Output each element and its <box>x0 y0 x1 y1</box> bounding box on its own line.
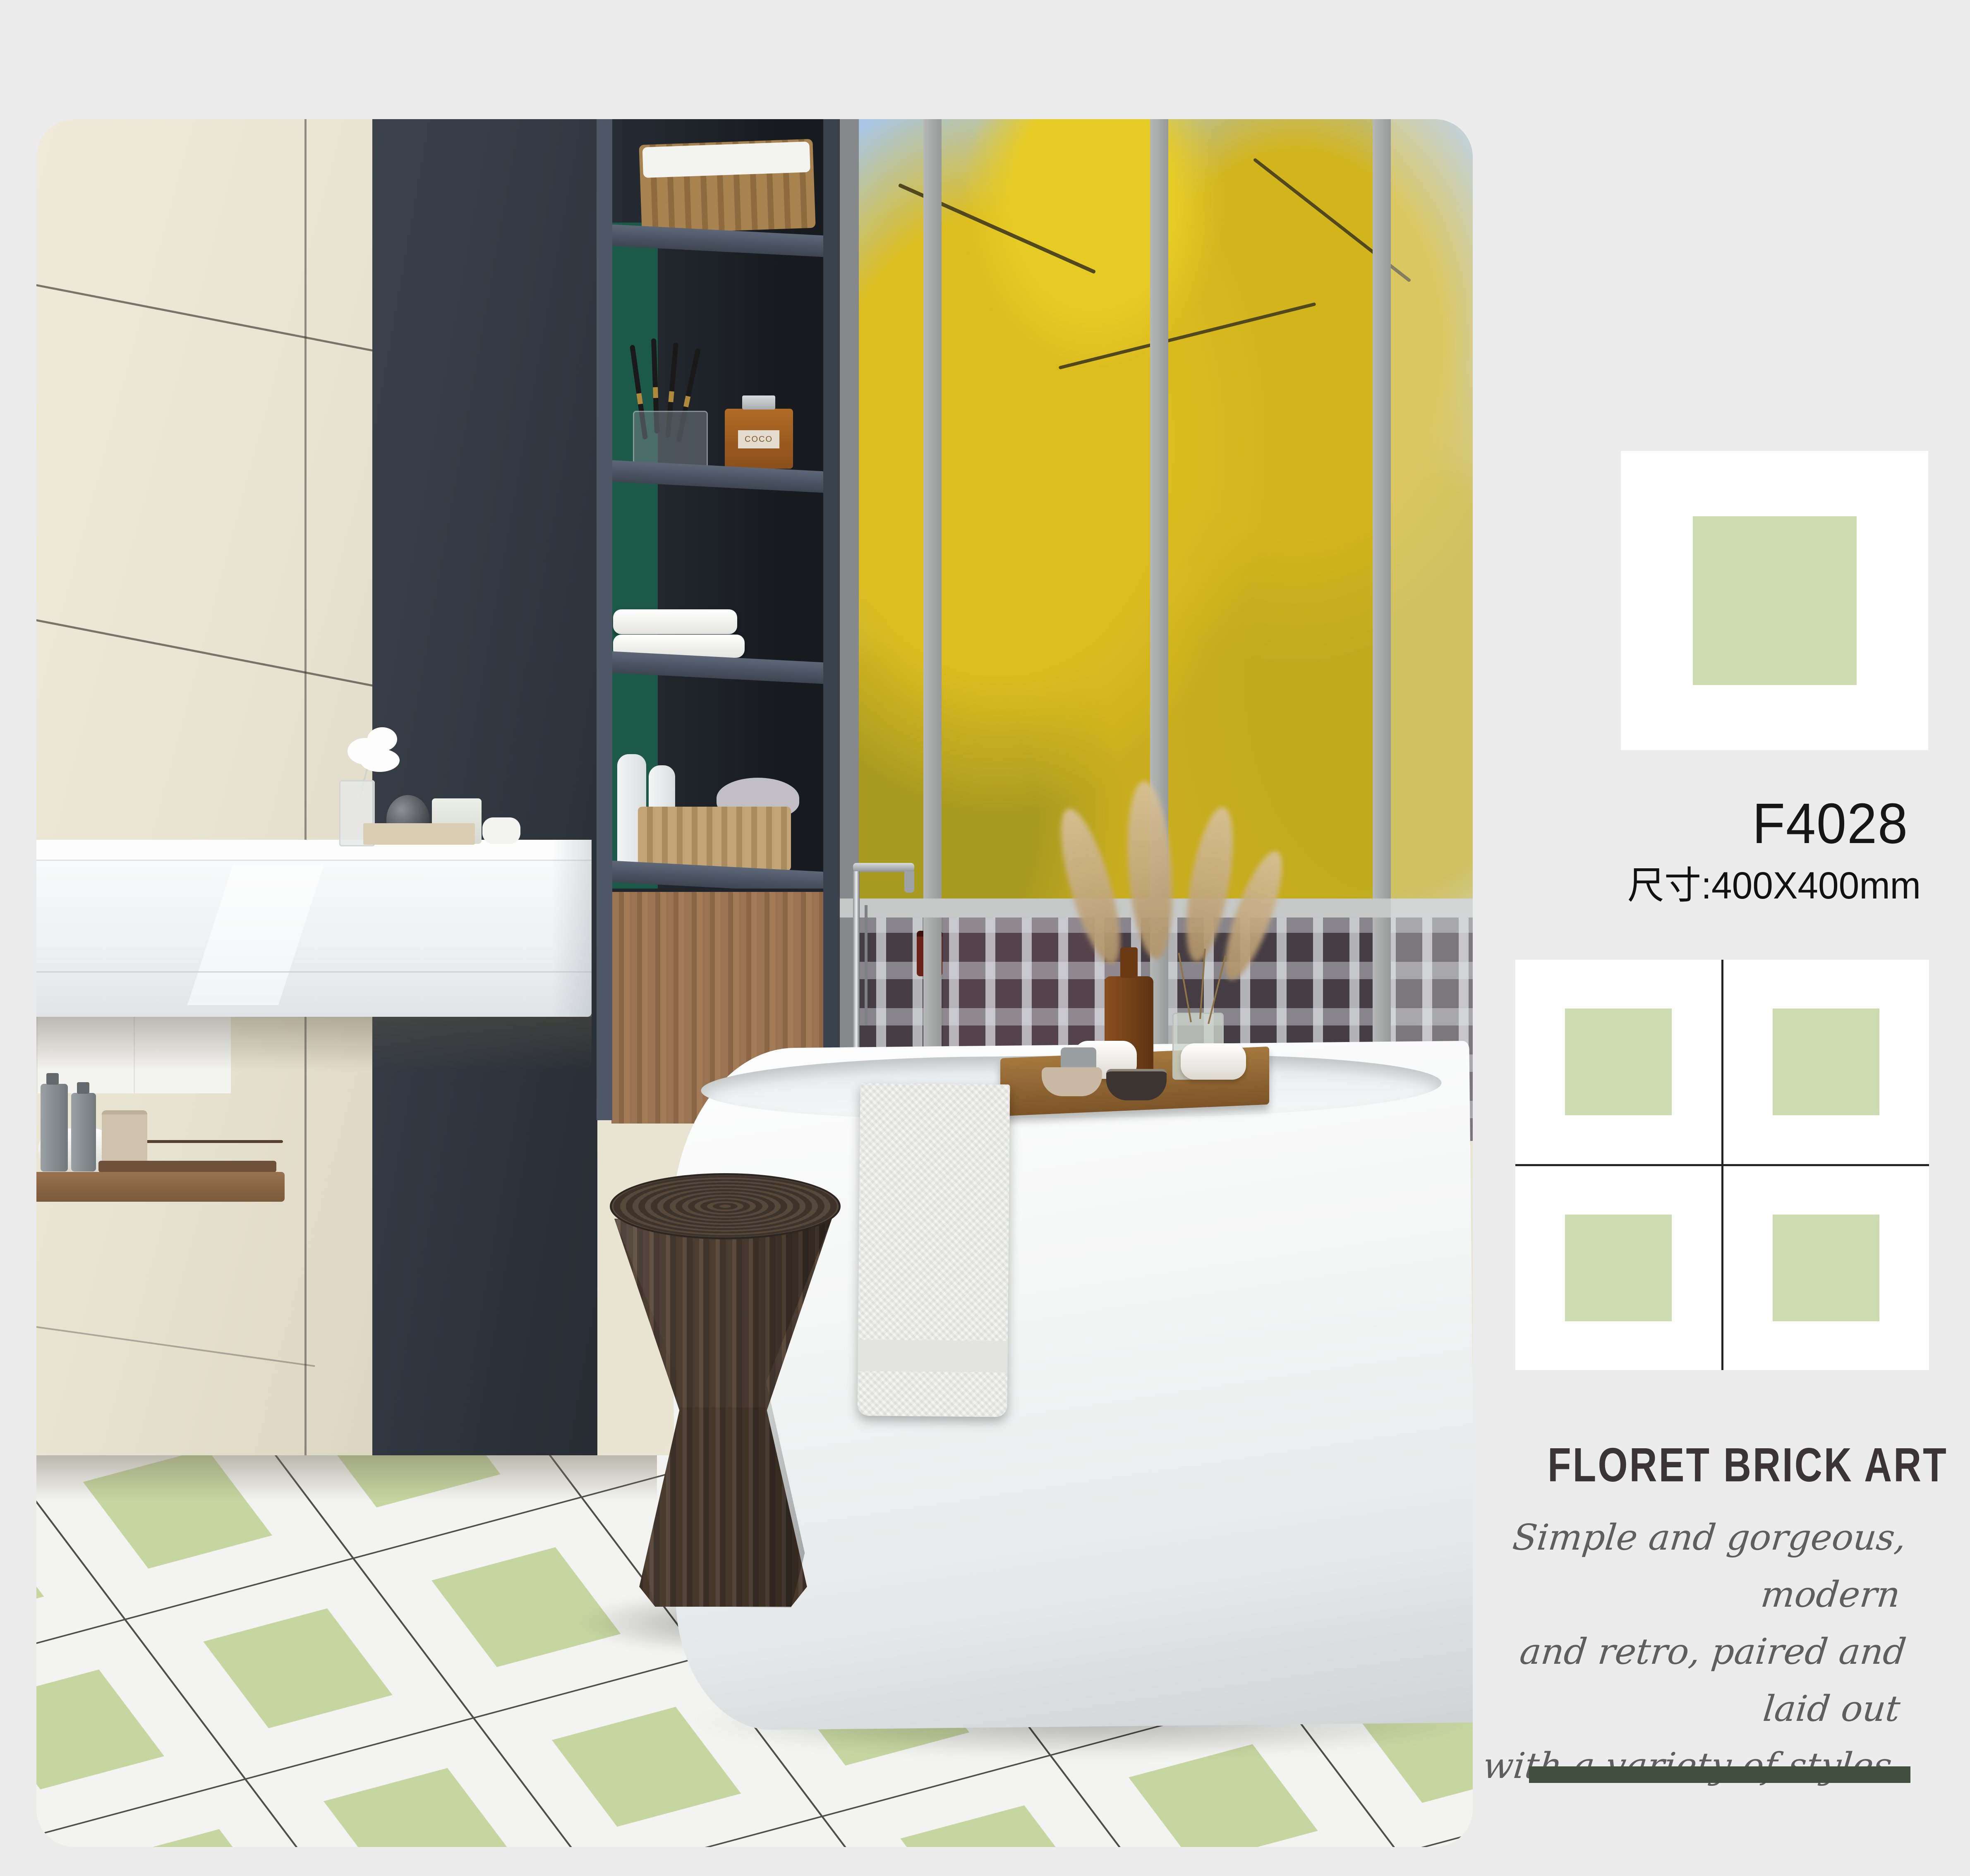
tagline-line: with a variety of styles, <box>1445 1737 1906 1795</box>
counter-gloss-reflection <box>187 865 324 1005</box>
shelving-unit: COCO <box>597 119 840 1120</box>
product-code: F4028 <box>1515 791 1908 857</box>
tile-green-center <box>1693 516 1857 685</box>
window-mullion <box>1373 119 1391 1141</box>
faucet-spout-tip <box>904 871 914 893</box>
counter-shadow <box>36 1017 592 1071</box>
window-autumn-view <box>840 119 1473 1141</box>
dark-bowl <box>1106 1069 1167 1100</box>
series-title: FLORET BRICK ART <box>1548 1437 1948 1493</box>
tile-green-center <box>1565 1215 1672 1321</box>
shelf-frame-left <box>597 119 612 1120</box>
grid-tile <box>1515 1166 1721 1370</box>
faucet-spout <box>853 863 914 872</box>
grid-tile <box>1723 1166 1929 1370</box>
tile-sample-single <box>1621 451 1928 750</box>
perfume-bottle: COCO <box>725 409 793 469</box>
product-size: 尺寸:400X400mm <box>1502 855 1921 910</box>
wood-floating-shelf <box>36 1172 285 1202</box>
wood-tray-edge <box>98 1161 276 1172</box>
tagline-block: Simple and gorgeous, modern and retro, p… <box>1448 1509 1903 1795</box>
shelf-rail <box>134 1140 283 1143</box>
beige-tray-box <box>363 823 475 845</box>
woven-basket <box>638 807 791 871</box>
counter-groove <box>36 971 592 973</box>
white-flower <box>360 749 400 772</box>
basket-liner <box>642 141 810 178</box>
bathroom-scene-photo: COCO <box>36 119 1473 1847</box>
pump-bottle <box>71 1093 96 1172</box>
wicker-basket <box>639 139 815 234</box>
tree-branch <box>1059 302 1316 370</box>
draped-bath-towel <box>857 1083 1010 1417</box>
hand-shower-wand <box>865 905 868 1025</box>
stone-bowl <box>1042 1067 1102 1096</box>
stool-top <box>610 1173 841 1239</box>
pump-bottle <box>41 1084 68 1172</box>
freestanding-faucet <box>853 871 860 1070</box>
floating-vanity-counter <box>36 840 592 1017</box>
shelf-frame-right <box>823 119 840 1120</box>
stool-shading <box>610 1219 836 1608</box>
window-mullion <box>923 119 942 1141</box>
tile-green-center <box>1773 1215 1879 1321</box>
tagline-line: Simple and gorgeous, modern <box>1442 1509 1909 1623</box>
perfume-cap <box>742 395 775 410</box>
wall-tile-seam-vertical <box>304 119 307 1459</box>
counter-side-face <box>552 840 592 1017</box>
accent-bar <box>1529 1766 1910 1783</box>
rolled-towel <box>1181 1043 1246 1080</box>
tile-sample-grid-2x2 <box>1515 960 1929 1370</box>
perfume-label: COCO <box>738 430 779 448</box>
folded-towel <box>613 609 737 634</box>
grid-tile <box>1515 960 1721 1164</box>
wood-hourglass-stool <box>610 1173 836 1632</box>
towel-band <box>858 1339 1008 1372</box>
cream-tile-wall <box>36 119 372 1484</box>
white-flower <box>367 727 397 751</box>
grid-tile <box>1723 960 1929 1164</box>
tile-green-center <box>1773 1009 1879 1115</box>
white-tube <box>482 817 520 844</box>
tile-green-center <box>1565 1009 1672 1115</box>
tagline-line: and retro, paired and laid out <box>1442 1623 1909 1737</box>
window-right-pane <box>1391 119 1473 1141</box>
wall-floor-shadow <box>36 1455 657 1501</box>
